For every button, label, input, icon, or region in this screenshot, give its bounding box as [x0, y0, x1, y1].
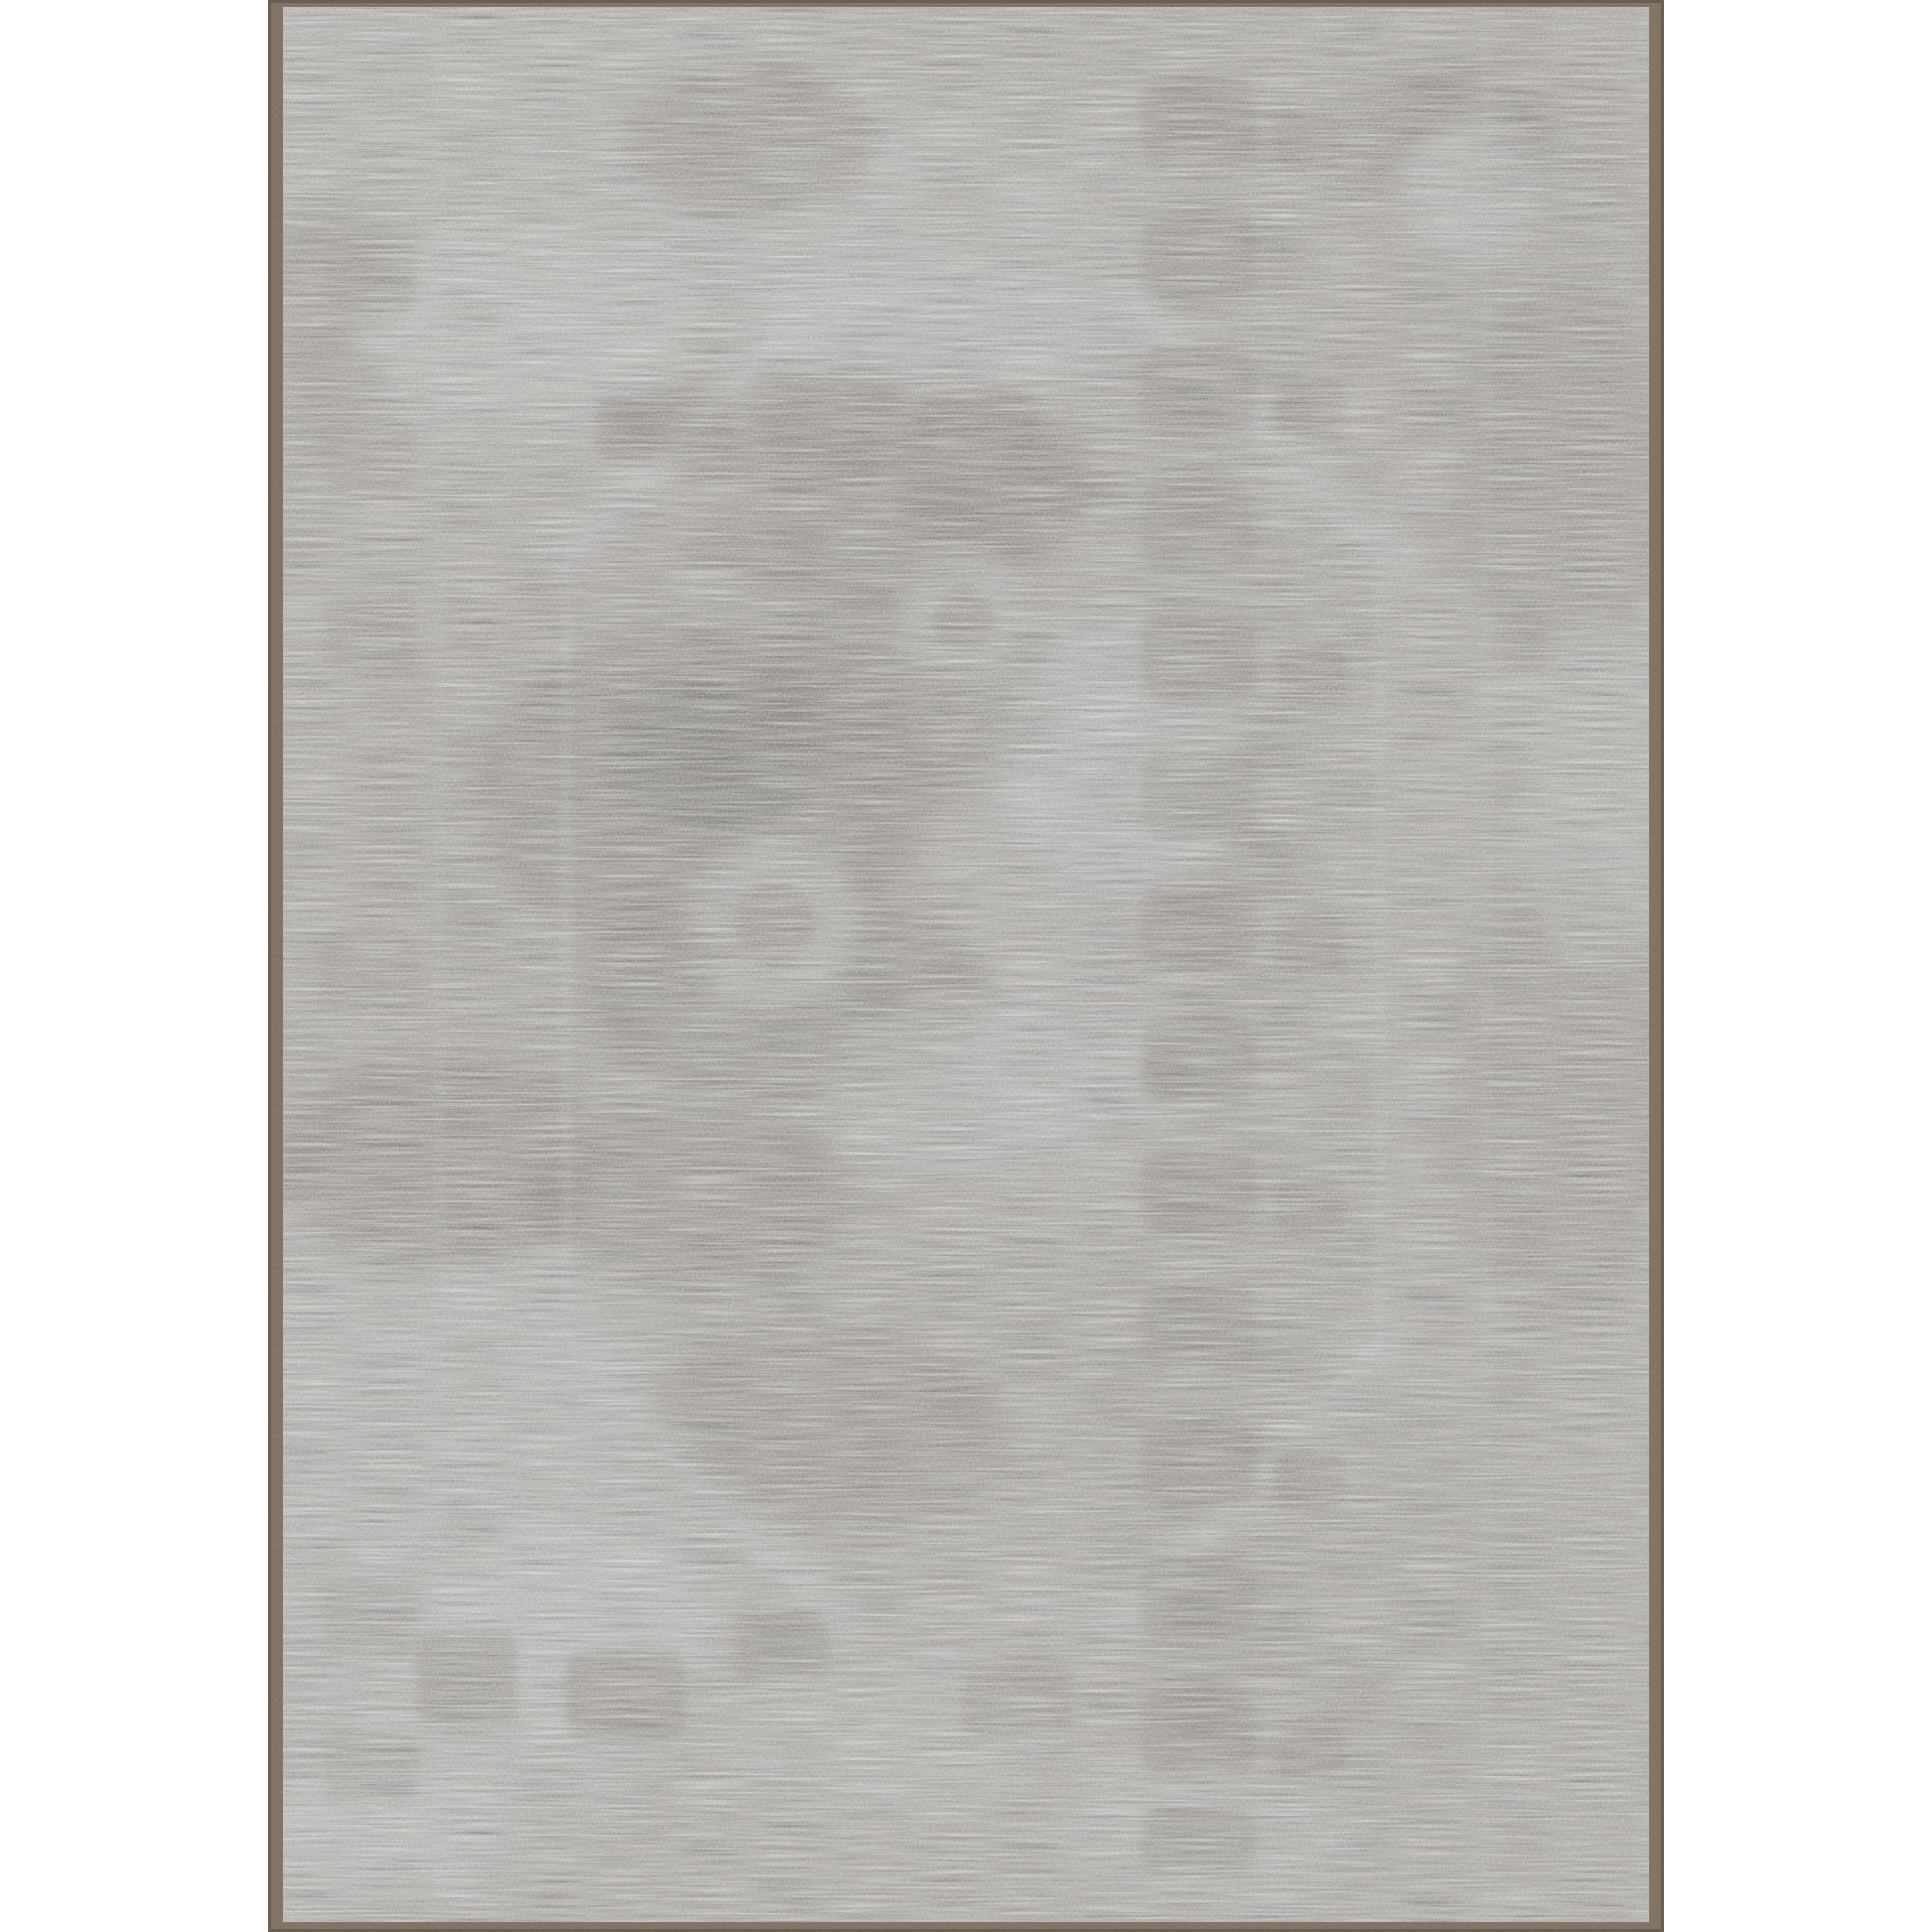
binding-grain — [268, 0, 1664, 1932]
binding-texture — [268, 0, 1664, 1932]
page-background — [0, 0, 1932, 1932]
rug-image — [268, 0, 1664, 1932]
rug-photo-svg — [268, 0, 1664, 1932]
